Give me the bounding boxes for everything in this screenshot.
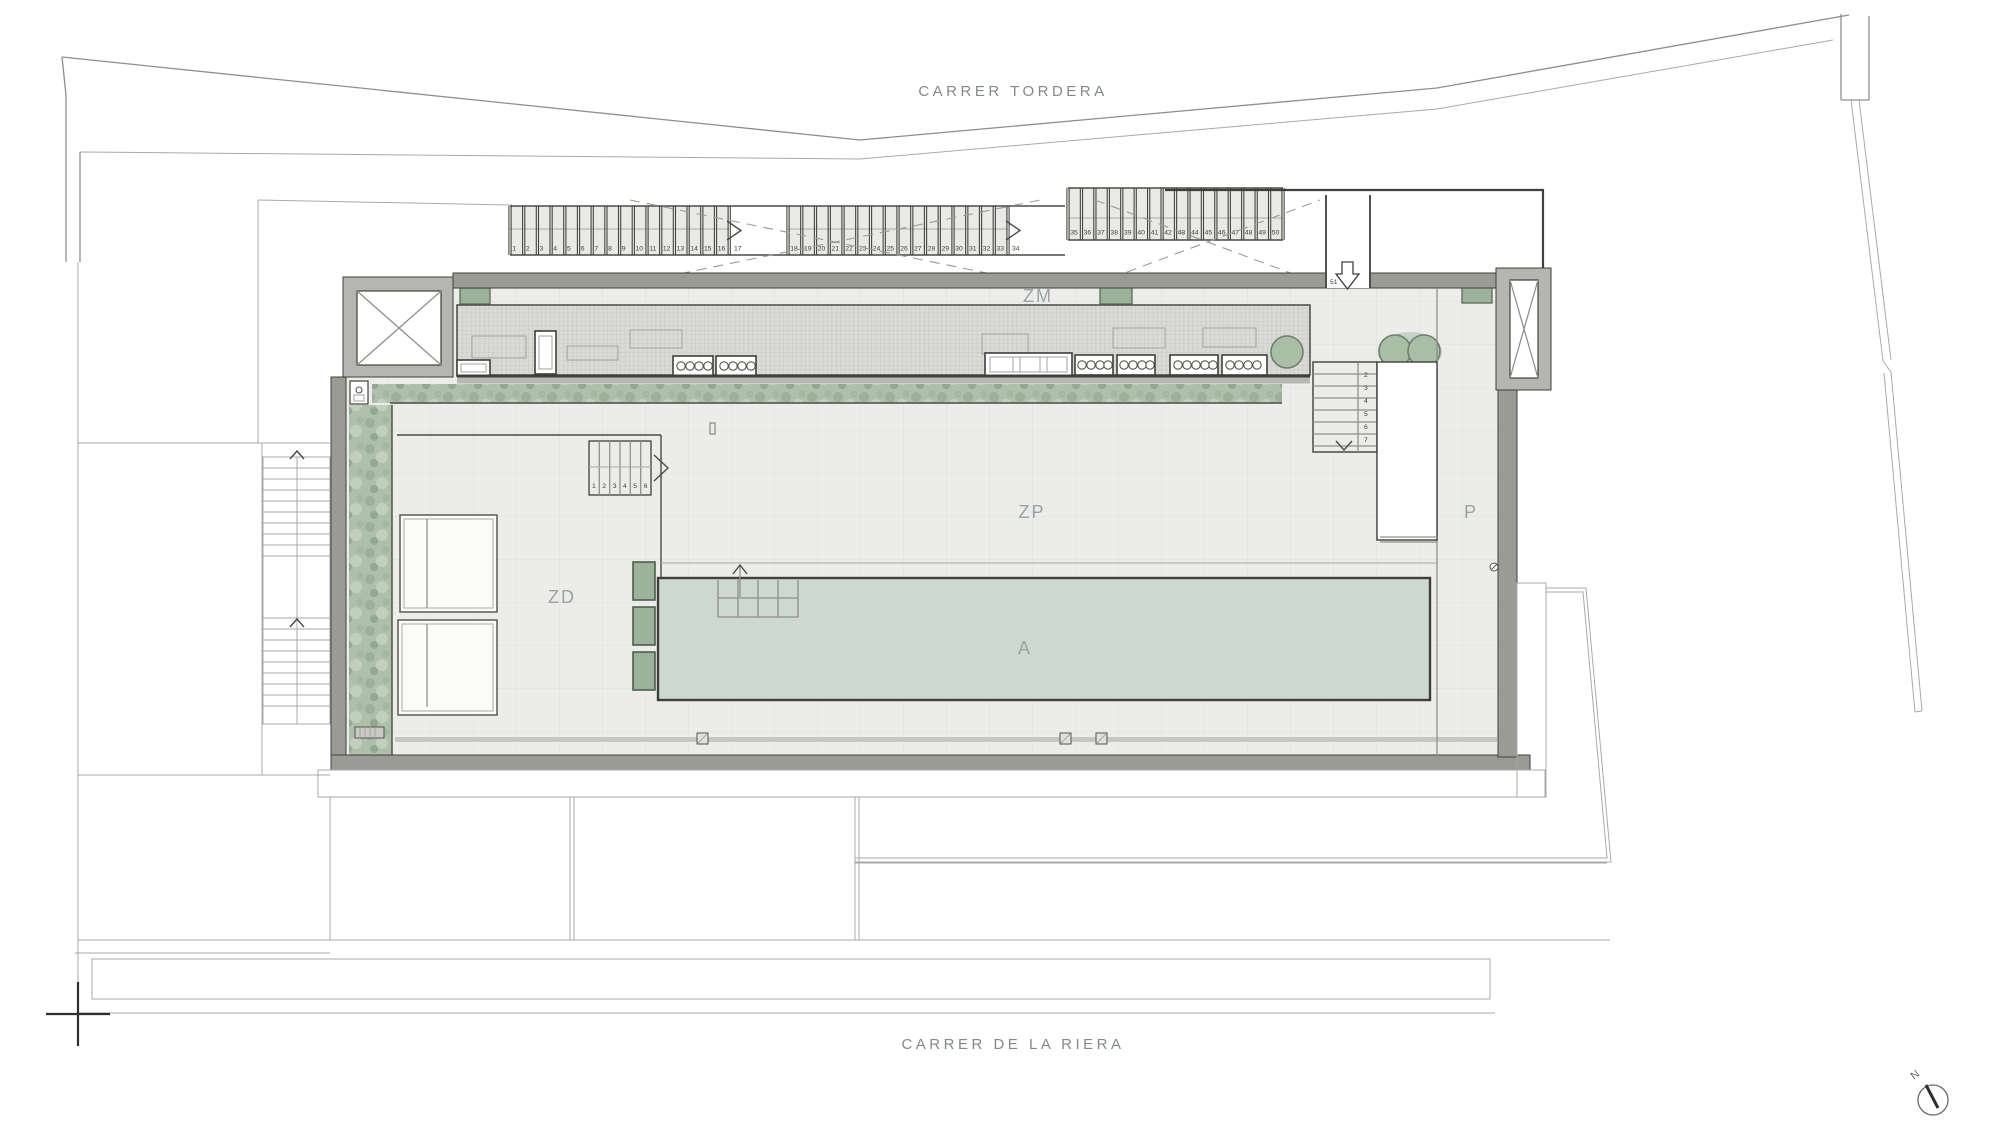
zone-label-zm: ZM bbox=[1023, 286, 1053, 306]
vent-box bbox=[457, 360, 490, 376]
parking-stall-number: 20 bbox=[818, 246, 826, 253]
street-label-top: CARRER TORDERA bbox=[918, 83, 1107, 100]
parking-stall-number: 26 bbox=[900, 246, 908, 253]
lower-terraces bbox=[78, 770, 1610, 940]
parking-stall-number: 8 bbox=[608, 246, 612, 253]
fan-coil-unit bbox=[1222, 355, 1267, 375]
sidewalk-band bbox=[92, 959, 1490, 999]
stair-void bbox=[1377, 362, 1437, 540]
fan-coil-unit bbox=[1117, 355, 1155, 375]
stair-tread-number: 3 bbox=[1364, 385, 1368, 392]
parking-stall-number: 40 bbox=[1137, 230, 1145, 237]
floor-plan: 12345678910111213141516 1819202122232425… bbox=[0, 0, 2000, 1125]
rail-anchor bbox=[697, 733, 708, 744]
north-arrow: N bbox=[1908, 1068, 1948, 1115]
green-planter-box bbox=[1462, 287, 1492, 303]
west-wall bbox=[331, 377, 346, 757]
elevator-core-right bbox=[1496, 268, 1551, 390]
drain-symbol bbox=[1490, 563, 1498, 571]
edge-rail bbox=[395, 737, 1497, 742]
parking-stall-number-17: 17 bbox=[734, 246, 742, 253]
skylight-platform bbox=[400, 515, 497, 612]
fan-coil-unit bbox=[673, 356, 713, 376]
zone-label-a: A bbox=[1018, 638, 1032, 658]
hedge-strip-left bbox=[349, 405, 392, 757]
parking-stall-number: 45 bbox=[1205, 230, 1213, 237]
parking-stall-number: 31 bbox=[969, 246, 977, 253]
parking-stall-number: 50 bbox=[1272, 230, 1280, 237]
parking-stall-number: 18 bbox=[790, 246, 798, 253]
parking-stall-number: 32 bbox=[983, 246, 991, 253]
parking-stall-number: 16 bbox=[718, 246, 726, 253]
stair-tread-number: 2 bbox=[1364, 372, 1368, 379]
pool bbox=[658, 565, 1430, 700]
parking-stall-number: 24 bbox=[873, 246, 881, 253]
chimney-box bbox=[535, 331, 556, 374]
rail-anchor bbox=[1060, 733, 1071, 744]
zm-sill bbox=[457, 378, 1310, 384]
compass-needle bbox=[1926, 1085, 1938, 1108]
parking-stall-number: 19 bbox=[804, 246, 812, 253]
parking-stall-number: 43 bbox=[1178, 230, 1186, 237]
parking-stall-number: 1 bbox=[512, 246, 516, 253]
parking-stall-number: 38 bbox=[1111, 230, 1119, 237]
parking-stall-number: 7 bbox=[594, 246, 598, 253]
skylight-platform bbox=[398, 620, 497, 715]
rail-anchor bbox=[1096, 733, 1107, 744]
stair-tread-number: 6 bbox=[644, 483, 648, 490]
tree bbox=[1271, 336, 1303, 368]
parking-stall-number: 29 bbox=[941, 246, 949, 253]
stair-tread-number: 7 bbox=[1364, 437, 1368, 444]
parking-stall-number: 25 bbox=[886, 246, 894, 253]
site-boundary-left-wall bbox=[62, 57, 80, 262]
zone-label-zd: ZD bbox=[548, 587, 576, 607]
survey-cross-marker bbox=[46, 982, 110, 1046]
wall-vent-box bbox=[350, 381, 368, 404]
parking-stall-number: 41 bbox=[1151, 230, 1159, 237]
stair-tread-number: 1 bbox=[592, 483, 596, 490]
ramp-bay-number: 51 bbox=[1330, 279, 1338, 286]
stair-tread-number: 4 bbox=[623, 483, 627, 490]
parking-stall-number: 30 bbox=[955, 246, 963, 253]
parking-stall-number: 4 bbox=[553, 246, 557, 253]
parking-stall-number: 48 bbox=[1245, 230, 1253, 237]
green-planter-box bbox=[1100, 287, 1132, 304]
pool-planter bbox=[633, 562, 655, 600]
hedge-strip-top bbox=[372, 384, 1282, 403]
stair-tread-number: 5 bbox=[1364, 411, 1368, 418]
stair-exterior-left bbox=[263, 451, 330, 724]
street-label-bottom: CARRER DE LA RIERA bbox=[901, 1036, 1124, 1053]
parking-stall-number: 3 bbox=[540, 246, 544, 253]
terrace-division-lines bbox=[78, 797, 1610, 940]
fan-coil-unit bbox=[1075, 355, 1113, 375]
parking-stall-number: 9 bbox=[622, 246, 626, 253]
zone-label-p: P bbox=[1464, 502, 1478, 522]
parking-rows: 12345678910111213141516 1819202122232425… bbox=[509, 188, 1284, 255]
stair-tread-number: 5 bbox=[633, 483, 637, 490]
parking-stall-number: 21 bbox=[831, 246, 839, 253]
stair-tread-number: 6 bbox=[1364, 424, 1368, 431]
zone-label-zp: ZP bbox=[1018, 502, 1045, 522]
green-planter-box bbox=[460, 288, 490, 304]
pool-water bbox=[658, 578, 1430, 700]
site-boundary-outer-top bbox=[62, 15, 1849, 140]
site-boundary-right-gate bbox=[1841, 14, 1869, 100]
fan-coil-unit bbox=[1170, 355, 1218, 375]
stair-tread-number: 3 bbox=[613, 483, 617, 490]
parking-stall-number: 12 bbox=[663, 246, 671, 253]
pool-planter bbox=[633, 652, 655, 690]
pool-planter bbox=[633, 607, 655, 645]
parking-stall-number: 44 bbox=[1191, 230, 1199, 237]
parking-stall-number: 33 bbox=[996, 246, 1004, 253]
stair-tread-number: 4 bbox=[1364, 398, 1368, 405]
parking-stall-number: 5 bbox=[567, 246, 571, 253]
parking-stall-number: 36 bbox=[1084, 230, 1092, 237]
parking-stall-number: 22 bbox=[845, 246, 853, 253]
louver-unit bbox=[985, 353, 1072, 376]
parking-stall-number: 23 bbox=[859, 246, 867, 253]
skylight-core-left bbox=[343, 277, 453, 377]
parking-stall-number: 11 bbox=[649, 246, 656, 253]
parking-stall-number: 42 bbox=[1164, 230, 1172, 237]
south-apron bbox=[318, 770, 1545, 797]
parking-stall-number: 13 bbox=[677, 246, 685, 253]
parking-stall-number: 6 bbox=[581, 246, 585, 253]
parking-stall-number: 49 bbox=[1258, 230, 1266, 237]
parking-stall-number: 28 bbox=[928, 246, 936, 253]
compass-north-label: N bbox=[1908, 1068, 1922, 1082]
parking-stall-number: 47 bbox=[1231, 230, 1239, 237]
parking-stall-number: 27 bbox=[914, 246, 922, 253]
parking-stall-number: 35 bbox=[1070, 230, 1078, 237]
parking-stall-number: 10 bbox=[636, 246, 644, 253]
parking-stall-number: 39 bbox=[1124, 230, 1132, 237]
fan-coil-unit bbox=[716, 356, 756, 376]
irrigation-box bbox=[355, 727, 384, 738]
parking-stall-number: 37 bbox=[1097, 230, 1105, 237]
stair-tread-number: 2 bbox=[602, 483, 606, 490]
parking-stall-number: 14 bbox=[690, 246, 698, 253]
site-boundary-right bbox=[1851, 100, 1922, 712]
parking-stall-number-34: 34 bbox=[1012, 246, 1020, 253]
south-wall bbox=[331, 755, 1530, 770]
parking-stall-number: 2 bbox=[526, 246, 530, 253]
parking-stall-number: 15 bbox=[704, 246, 712, 253]
